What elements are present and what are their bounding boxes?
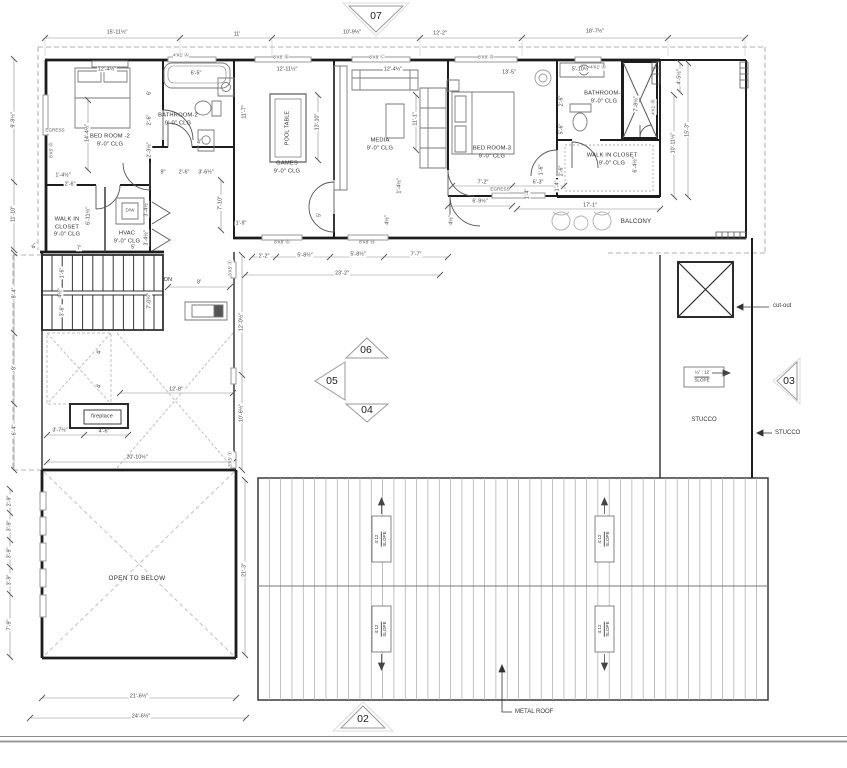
section-marker-04: 04: [361, 404, 373, 416]
dimension-label: 1'-4": [525, 188, 530, 201]
dimension-label: 21'-6½": [129, 694, 149, 699]
dimension-label: 10'-11½": [671, 132, 676, 155]
dimension-label: 5'-10½": [571, 67, 591, 72]
floor-plan-sheet: BED ROOM -29'-0" CLG BATHROOM-29'-0" CLG…: [0, 0, 847, 768]
dimension-label: 4½": [385, 214, 390, 225]
balcony-label: BALCONY: [621, 218, 652, 226]
window-tag: 3'X5' Ⓔ: [229, 260, 234, 276]
dimension-label: 1'-4": [555, 180, 560, 193]
dimension-label: 4': [97, 383, 102, 389]
sheet-border: [0, 737, 847, 742]
dimension-label: 4': [196, 140, 202, 145]
dimension-label: 1'-4½": [397, 177, 402, 194]
dimension-label: 3'-9": [7, 574, 12, 587]
dimension-label: 1'-6": [60, 267, 65, 280]
window-tag: 8'X8' Ⓓ: [478, 56, 494, 61]
dimension-label: 5'-6": [559, 123, 564, 136]
window-tag: 8'X5' Ⓓ: [50, 142, 55, 158]
open-to-below-label: OPEN TO BELOW: [109, 575, 166, 583]
roof-slope-label-4: 4:12SLOPE: [597, 621, 611, 636]
window-tag: 4'X1' Ⓐ: [173, 54, 189, 59]
dimension-label: 3'-6½": [197, 170, 214, 175]
dimension-label: 12'-8": [168, 387, 184, 392]
room-label-bathroom2: BATHROOM-29'-0" CLG: [158, 112, 198, 127]
dimension-label: 13'-5": [501, 70, 517, 75]
dimension-label: 2'-6": [559, 165, 564, 178]
dimension-label: 24'-6½": [131, 714, 151, 719]
dimension-label: 7'-8½": [634, 95, 639, 112]
dimension-label: 4½": [58, 287, 63, 298]
dimension-label: 11'-10": [11, 205, 16, 223]
section-marker-05: 05: [326, 375, 338, 387]
dimension-label: 6'-5": [190, 71, 203, 76]
dimension-label: 11': [233, 32, 242, 37]
room-label-bedroom2: BED ROOM -29'-0" CLG: [90, 133, 130, 148]
dimension-label: 12'-2": [432, 31, 448, 36]
dimension-label: 1'-6": [539, 164, 544, 177]
dimension-label: 2'-6": [64, 182, 77, 187]
room-label-bedroom3: BED ROOM-39'-0" CLG: [473, 145, 511, 160]
furniture: [75, 61, 653, 320]
dimension-label: 17'-1": [582, 203, 598, 208]
stucco-leader-label: STUCCO: [775, 430, 800, 436]
dimension-label: 8'-4": [12, 287, 17, 300]
dimension-label: 11'-1": [413, 111, 418, 126]
dimension-label: 7'-2": [477, 180, 490, 185]
dimension-label: 5': [130, 245, 136, 250]
stairs-dn-label: DN: [164, 277, 172, 283]
cut-out-label: cut-out: [773, 303, 791, 309]
dimension-label: 12'-4½": [97, 67, 117, 72]
metal-roof: [258, 478, 768, 700]
dimension-label: 5': [317, 212, 322, 218]
window-tag: 8'X8' Ⓒ: [369, 56, 385, 61]
roof-slope-label-2: 4:12SLOPE: [374, 621, 388, 636]
dimension-label: 2'-6": [147, 114, 152, 127]
window-tag: EGRESS: [45, 129, 64, 134]
stucco-area-label: STUCCO: [691, 417, 716, 423]
window-tag: 8'X8' Ⓖ: [274, 241, 290, 246]
floor-plan-linework: [0, 0, 847, 768]
dimension-label: 3'-4½": [144, 200, 149, 217]
dimension-label: 3'-9": [7, 547, 12, 560]
dimension-label: 7'-0¼": [147, 292, 152, 309]
dimension-label: 11'-7": [242, 104, 247, 119]
dimension-label: 4': [97, 349, 102, 355]
dimension-label: 18'-7½": [585, 29, 605, 34]
balcony-furniture: [552, 212, 611, 230]
dimension-label: 21'-3": [242, 562, 247, 578]
window-tag: 3'X5' Ⓔ: [229, 451, 234, 467]
dimension-label: 4½": [449, 214, 454, 225]
dimension-label: 6'-4": [12, 424, 17, 437]
roof-cut-out: [678, 262, 733, 317]
dimension-label: 5'-8½": [296, 253, 313, 258]
roof-slope-label-3: 4:12SLOPE: [597, 531, 611, 546]
roof-slope-label-1: 4:12SLOPE: [374, 531, 388, 546]
dimension-label: 5'-8½": [349, 252, 366, 257]
dimension-label: 10'-9½": [342, 30, 362, 35]
dimension-label: 6'-3": [532, 180, 545, 185]
section-marker-07: 07: [370, 10, 382, 22]
dimension-label: 6'-11½": [86, 206, 91, 226]
metal-roof-label: METAL ROOF: [515, 709, 553, 715]
room-label-hvac: HVAC9'-0" CLG: [114, 230, 140, 245]
pool-table-label: POOL TABLE: [284, 111, 291, 145]
dimension-label: 3'-6": [60, 305, 65, 318]
room-label-walk-in-closet-left: WALK INCLOSET9'-0" CLG: [54, 217, 80, 240]
window-tag: 4'X1' Ⓑ: [652, 99, 657, 115]
dimension-label: 2'-6": [178, 170, 191, 175]
dimension-label: 7': [76, 246, 82, 251]
dimension-label: 2'-6": [559, 95, 564, 108]
dimension-label: 3'-4½": [144, 229, 149, 246]
dimension-label: 8': [12, 365, 17, 371]
dimension-label: 7'-9": [7, 619, 12, 632]
dimension-label: 2'-3½": [147, 141, 152, 158]
wall-hatch-details: [652, 62, 748, 239]
dimension-label: 7'-10": [218, 195, 223, 211]
section-marker-06: 06: [360, 344, 372, 356]
room-label-games: GAMES9'-0" CLG: [274, 160, 300, 175]
dimension-label: 20'-10½": [125, 455, 148, 460]
dimension-label: 6'-4½": [633, 156, 638, 173]
dimension-label: 9": [160, 170, 167, 175]
window-tag: 8'X8' Ⓗ: [359, 241, 375, 246]
door-swings: [96, 110, 652, 251]
room-label-bathroom3: BATHROOM-39'-0" CLG: [584, 90, 624, 105]
dimension-label: 6'-9½": [471, 199, 488, 204]
window-tag: 4'X1' Ⓐ: [590, 66, 606, 71]
window-tag: 8'X8' Ⓑ: [273, 56, 289, 61]
dimension-label: 23'-2": [334, 271, 350, 276]
room-label-walk-in-closet-right: WALK IN CLOSET9'-0" CLG: [587, 152, 638, 167]
dimension-label: 12'-4½": [383, 67, 403, 72]
flat-roof-slope-label: ¼" : 12SLOPE: [694, 370, 709, 385]
dimension-label: 1'-4½": [54, 173, 71, 178]
room-label-media: MEDIA9'-0" CLG: [367, 137, 393, 152]
section-marker-02: 02: [357, 713, 369, 725]
dimension-label: 15'-3": [685, 122, 690, 138]
dimension-label: 10'-6½": [239, 403, 244, 423]
dimension-label: 7'-7": [410, 252, 423, 257]
window-tag: EGRESS: [490, 188, 509, 193]
dimension-label: 3'-9": [7, 520, 12, 533]
window-tag: D/W: [126, 209, 135, 214]
dimension-label: 15'-11½": [106, 30, 129, 35]
section-marker-03: 03: [783, 375, 795, 387]
dimension-label: 3'-7½": [51, 428, 68, 433]
dimension-label: 4'-6": [98, 429, 111, 434]
fireplace-label: fireplace: [91, 413, 113, 420]
open-area-x-marks: [44, 333, 234, 656]
dimension-label: 1'-9": [235, 221, 248, 226]
dimension-label: 8': [196, 280, 202, 285]
dimension-label: 6': [147, 90, 152, 96]
dimension-label: 13'-10": [315, 113, 320, 132]
dimension-label: 12'-11½": [276, 67, 299, 72]
dimension-label: 2'-9": [7, 495, 12, 508]
dimension-label: 2'-2": [258, 254, 271, 259]
dimension-label: 4'-5½": [677, 68, 682, 85]
dimension-label: 12'-0½": [239, 312, 244, 332]
dimension-label: 9'-8½": [11, 111, 16, 128]
dimension-label: 14'-4½": [85, 123, 90, 143]
